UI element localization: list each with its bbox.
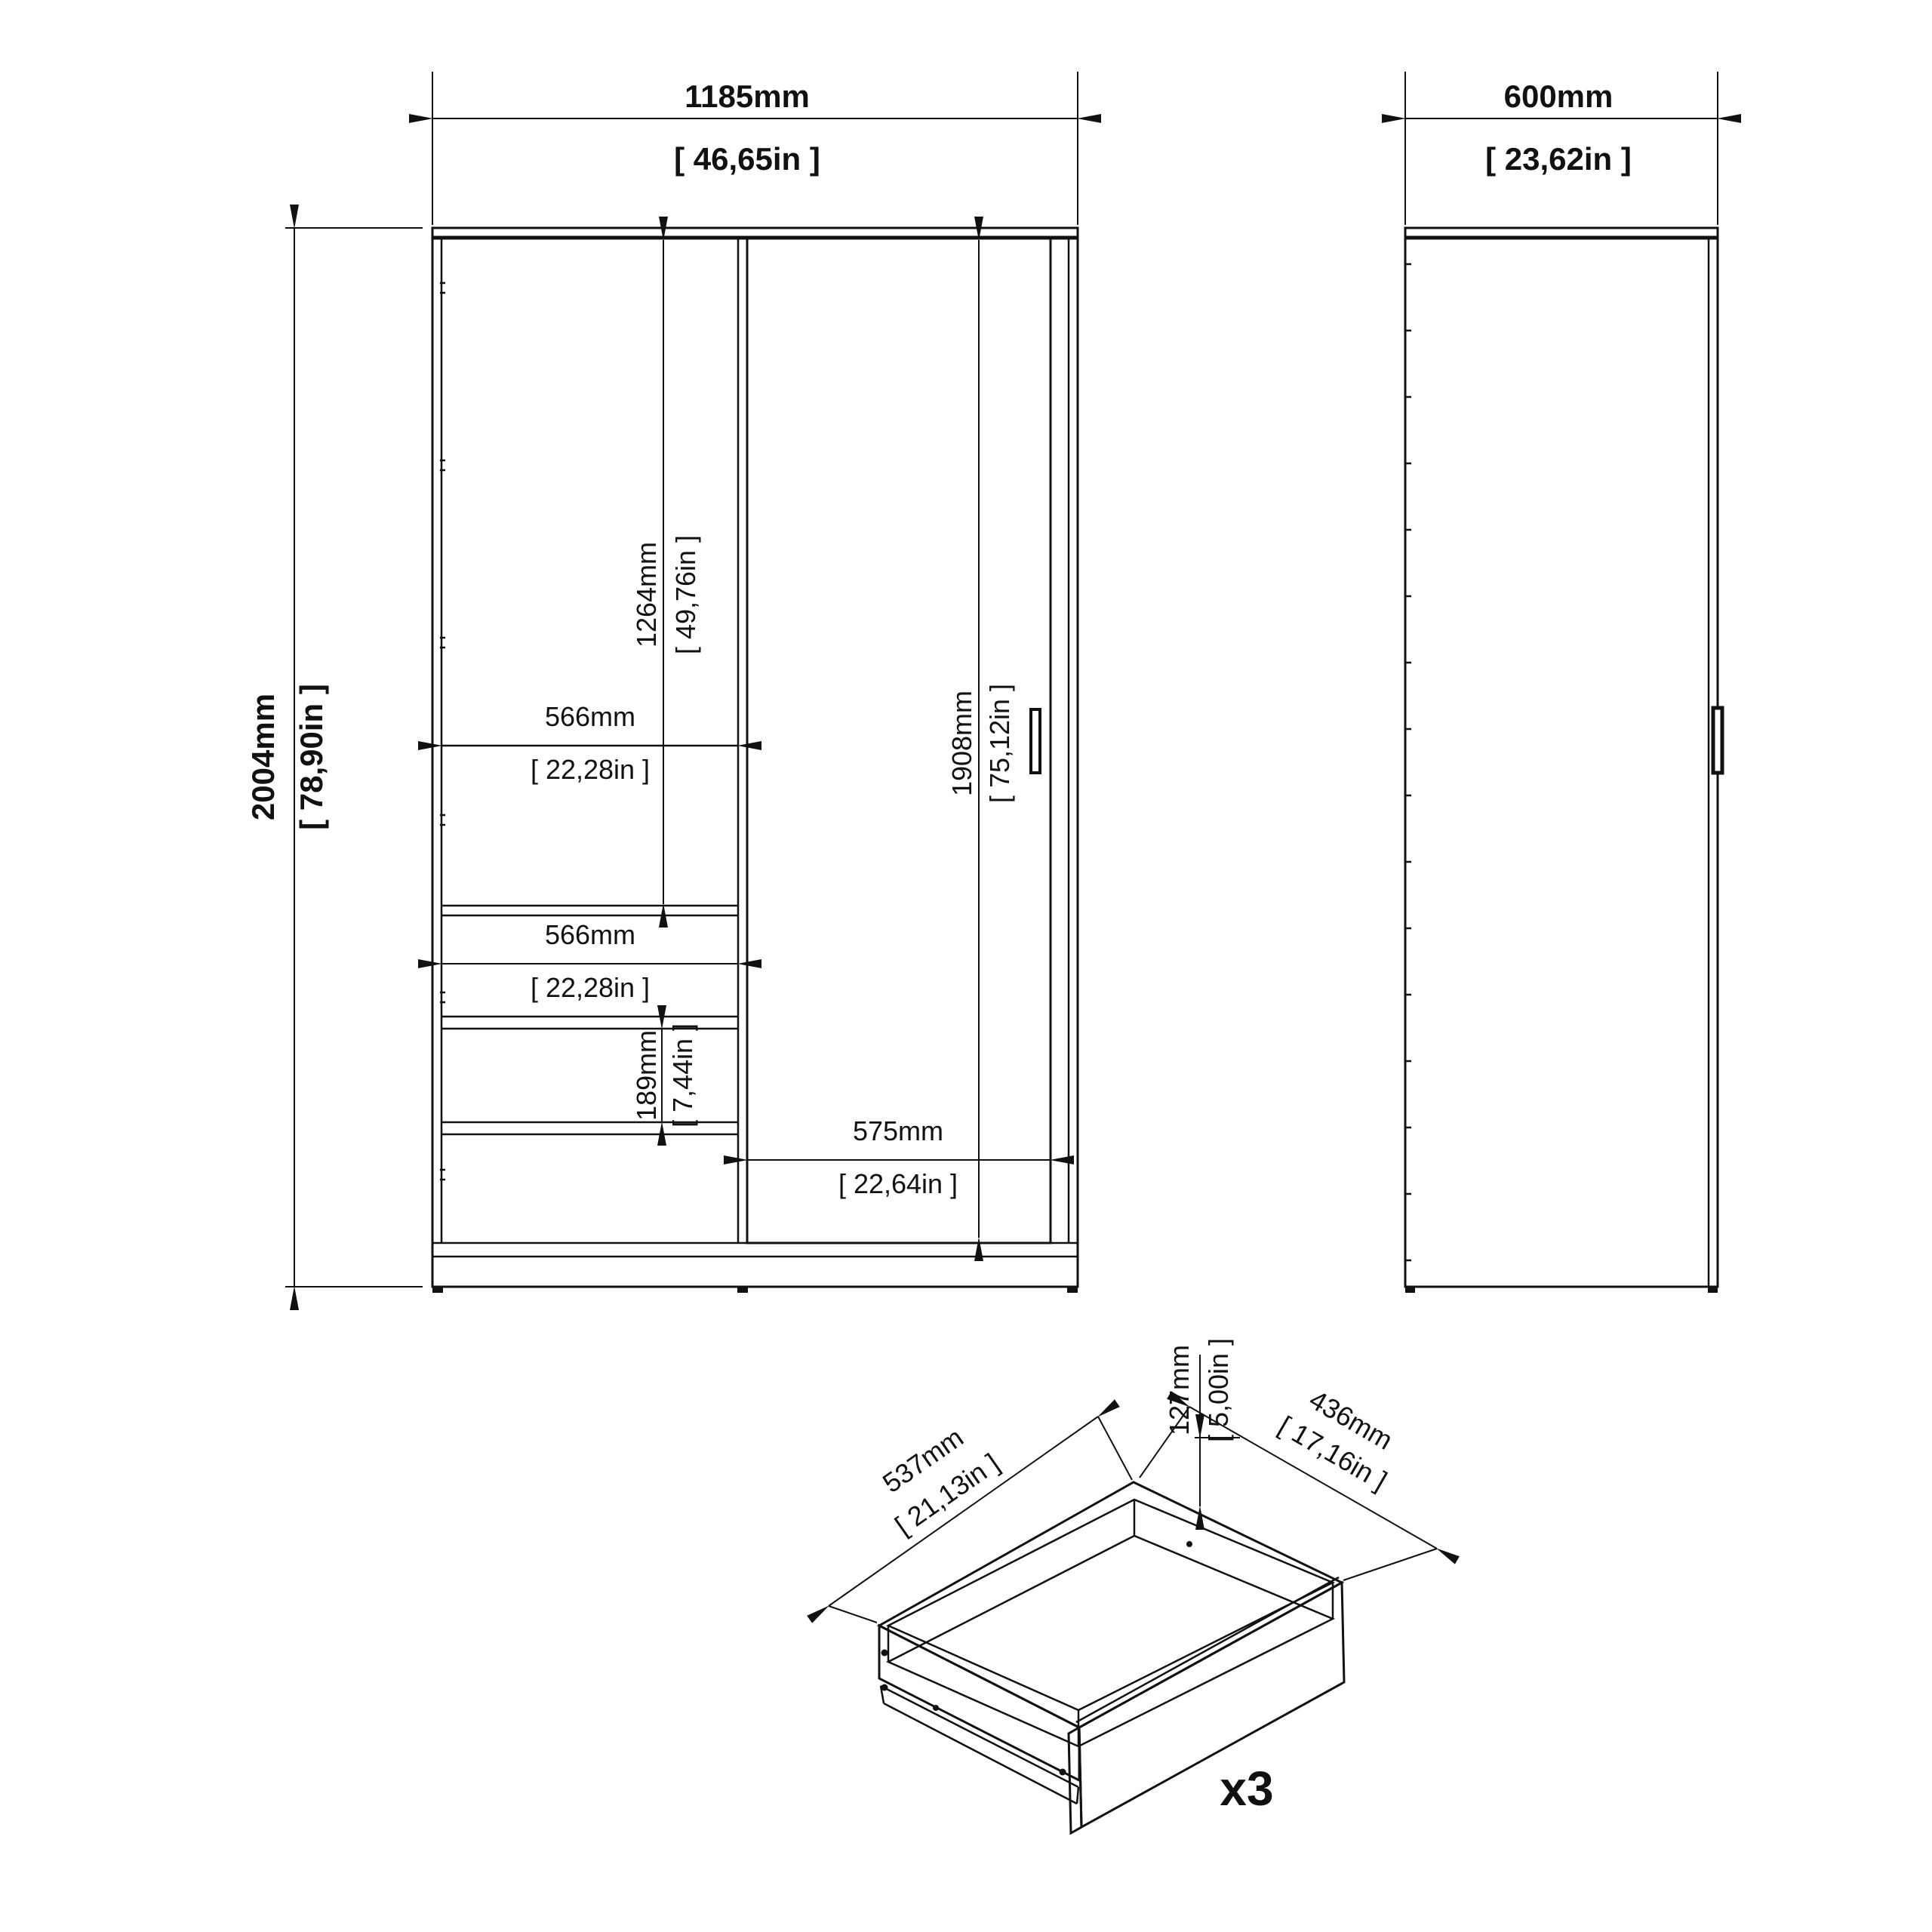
drawer-dimensions: 537mm [ 21,13in ] 436mm [ 17,16in ] 127m… <box>829 1338 1437 1623</box>
dim-front-width-in: [ 46,65in ] <box>674 141 820 177</box>
side-view: 600mm [ 23,62in ] <box>1405 72 1722 1293</box>
dim-front-height-in: [ 78,90in ] <box>294 684 329 830</box>
drawer-screw-dot <box>881 1684 888 1691</box>
drawer-front-panel <box>1079 1583 1344 1827</box>
dim-front-width-mm: 1185mm <box>685 78 810 114</box>
side-dimensions: 600mm [ 23,62in ] <box>1405 72 1718 225</box>
front-foot-left <box>432 1287 443 1293</box>
drawer-rail-dot <box>1060 1769 1066 1776</box>
side-door-handle <box>1713 708 1722 773</box>
dim-drawer-front-height-in: [ 7,44in ] <box>667 1023 698 1128</box>
dim-shelf-width-mm: 566mm <box>545 701 635 732</box>
dim-drawer-127-in: [ 5,00in ] <box>1203 1338 1234 1442</box>
dim-door-height-in: [ 75,12in ] <box>984 684 1015 803</box>
drawer-detail-view: 537mm [ 21,13in ] 436mm [ 17,16in ] 127m… <box>829 1338 1437 1833</box>
drawer-screw-dot <box>881 1650 888 1657</box>
side-foot-right <box>1708 1287 1718 1293</box>
drawer-rail-dot <box>933 1705 939 1711</box>
front-foot-center <box>737 1287 748 1293</box>
dim-side-depth-mm: 600mm <box>1504 78 1614 114</box>
dim-shelf-width-in: [ 22,28in ] <box>531 754 650 785</box>
dim-door-height-mm: 1908mm <box>946 691 977 796</box>
dim-drawer-width-in: [ 22,28in ] <box>531 972 650 1003</box>
dim-side-depth-in: [ 23,62in ] <box>1485 141 1632 177</box>
front-view-outline <box>432 228 1078 1293</box>
dim-drawer-front-height-mm: 189mm <box>631 1030 662 1121</box>
drawer-outer-rim <box>879 1482 1342 1727</box>
drawer-back-hole-dot <box>1186 1541 1192 1547</box>
dim-upper-section-mm: 1264mm <box>631 542 662 648</box>
dim-front-height-mm: 2004mm <box>245 694 281 820</box>
side-cabinet-outline <box>1405 228 1718 1287</box>
drawer-front-panel-top-inner-line <box>1076 1577 1339 1722</box>
drawer-box <box>879 1482 1344 1833</box>
front-foot-right <box>1067 1287 1078 1293</box>
dim-upper-section-in: [ 49,76in ] <box>670 535 701 654</box>
side-foot-left <box>1405 1287 1415 1293</box>
dim-drawer-width-mm: 566mm <box>545 919 635 950</box>
front-view: 1185mm [ 46,65in ] 2004mm [ 78,90in ] 12… <box>245 72 1078 1293</box>
front-dimensions: 1185mm [ 46,65in ] 2004mm [ 78,90in ] 12… <box>245 72 1078 1287</box>
wardrobe-technical-drawing: 1185mm [ 46,65in ] 2004mm [ 78,90in ] 12… <box>0 0 1932 1932</box>
dim-door-width-mm: 575mm <box>853 1115 943 1146</box>
front-door-handle <box>1031 709 1040 773</box>
dim-drawer-127-mm: 127mm <box>1164 1345 1195 1435</box>
drawer-quantity-label: x3 <box>1220 1761 1273 1816</box>
front-cabinet-outline <box>432 228 1078 1287</box>
side-view-outline <box>1405 228 1722 1293</box>
dim-door-width-in: [ 22,64in ] <box>838 1168 958 1199</box>
drawer-inner-rim <box>888 1500 1333 1710</box>
drawer-floor <box>888 1536 1333 1746</box>
